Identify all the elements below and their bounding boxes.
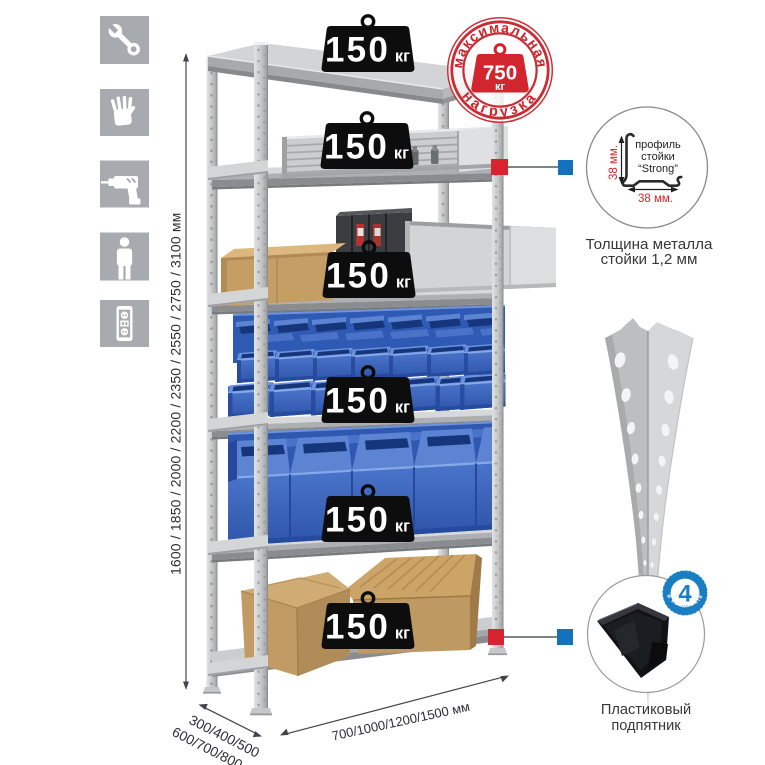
svg-text:стойки 1,2 мм: стойки 1,2 мм [601, 251, 698, 268]
svg-text:подпятник: подпятник [611, 718, 681, 734]
svg-text:профиль: профиль [635, 139, 681, 151]
svg-text:1600 / 1850 / 2000 / 2200 / 23: 1600 / 1850 / 2000 / 2200 / 2350 / 2550 … [168, 213, 184, 575]
svg-text:кг: кг [495, 81, 506, 93]
svg-text:38 мм.: 38 мм. [638, 193, 673, 205]
svg-text:стойки: стойки [641, 151, 675, 163]
svg-text:Пластиковый: Пластиковый [601, 702, 691, 718]
svg-text:38 мм.: 38 мм. [608, 145, 620, 180]
svg-text:“Strong”: “Strong” [638, 163, 678, 175]
